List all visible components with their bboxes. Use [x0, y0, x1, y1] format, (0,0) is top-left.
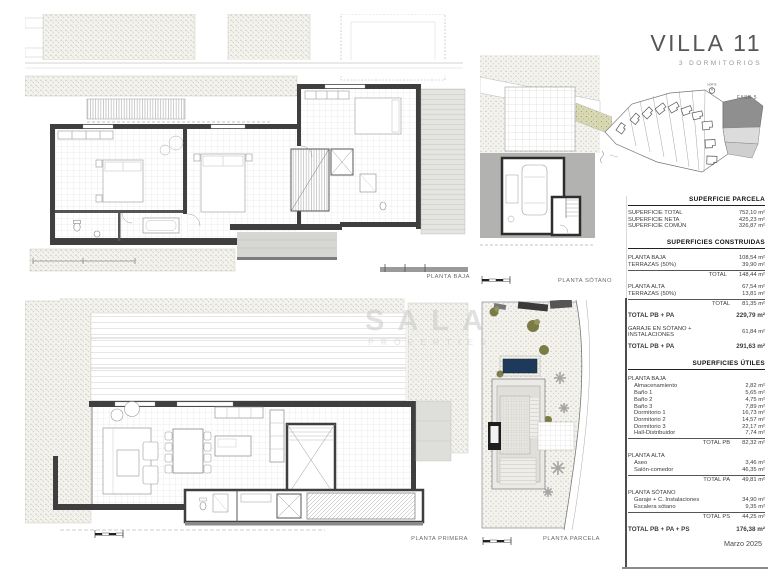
car	[522, 165, 547, 215]
villa-roof	[488, 379, 545, 489]
table-row: TOTAL PA 49,81 m²	[628, 475, 765, 484]
table-row: TOTAL PB + PA 291,63 m²	[628, 344, 765, 351]
north-arrow-icon: NORTE	[707, 82, 716, 93]
table-row: Dormitorio 2 14,57 m²	[628, 417, 765, 424]
table-row: Baño 1 5,65 m²	[628, 390, 765, 397]
label-planta-parcela: PLANTA PARCELA	[543, 536, 600, 542]
area-tables: SUPERFICIE PARCELA SUPERFICIE TOTAL 752,…	[628, 196, 765, 543]
table-header: SUPERFICIES CONSTRUIDAS	[628, 239, 765, 249]
basement-stairs	[552, 197, 580, 235]
table-row: TOTAL 148,44 m²	[628, 270, 765, 279]
scale-bar	[95, 530, 123, 538]
entry-steps	[87, 99, 270, 126]
table-row: Aseo 3,46 m²	[628, 460, 765, 467]
title-block: VILLA 11 3 DORMITORIOS	[532, 30, 762, 67]
planta-primera-plan	[25, 298, 470, 540]
label-planta-sotano: PLANTA SÓTANO	[558, 278, 612, 284]
table-header: SUPERFICIE PARCELA	[628, 196, 765, 206]
table-row: TOTAL PB + PA 229,79 m²	[628, 313, 765, 320]
stipple-top	[60, 298, 405, 313]
table-row: PLANTA ALTA 67,54 m²	[628, 284, 765, 291]
table-row: Dormitorio 1 16,73 m²	[628, 410, 765, 417]
table-row: PLANTA BAJA	[628, 376, 765, 383]
table-row: SUPERFICIE COMÚN 326,87 m²	[628, 223, 765, 230]
planta-parcela-plan	[480, 300, 612, 548]
toilet	[200, 502, 206, 510]
dining-table	[173, 429, 203, 473]
sink	[94, 231, 100, 237]
sheet-edge-line	[625, 298, 627, 568]
label-planta-baja: PLANTA BAJA	[427, 274, 470, 280]
fase-label: FASE 5	[737, 95, 757, 101]
site-location-map: NORTE FASE 5	[602, 82, 768, 178]
table-row: PLANTA ALTA	[628, 453, 765, 460]
table-row: TOTAL 81,35 m²	[628, 299, 765, 308]
table-row: PLANTA BAJA 108,54 m²	[628, 255, 765, 262]
pouf	[111, 409, 123, 421]
superficies-construidas-table: SUPERFICIES CONSTRUIDAS PLANTA BAJA 108,…	[628, 239, 765, 351]
coffee-table	[117, 450, 139, 476]
table-row: Dormitorio 3 22,17 m²	[628, 424, 765, 431]
superficie-parcela-table: SUPERFICIE PARCELA SUPERFICIE TOTAL 752,…	[628, 196, 765, 230]
table-rows: PLANTA BAJA Almacenamiento 2,82 m² Baño …	[628, 376, 765, 534]
table-header: SUPERFICIES ÚTILES	[628, 360, 765, 370]
superficies-utiles-table: SUPERFICIES ÚTILES PLANTA BAJA Almacenam…	[628, 360, 765, 534]
table-row: Hall-Distribuidor 7,74 m²	[628, 430, 765, 437]
sheet-edge-line	[626, 196, 627, 298]
annex	[185, 490, 423, 526]
table-row: Salón-comedor 46,35 m²	[628, 467, 765, 474]
table-row: TOTAL PB + PA + PS 176,38 m²	[628, 527, 765, 534]
table-row: TOTAL PS 44,25 m²	[628, 512, 765, 521]
toilet	[380, 202, 386, 210]
table-row: PLANTA SÓTANO	[628, 490, 765, 497]
patio-grid	[538, 422, 574, 450]
table-row: SUPERFICIE TOTAL 752,10 m²	[628, 210, 765, 217]
planta-baja-plan	[25, 14, 470, 276]
driveway-grid	[505, 87, 575, 151]
scale-bar	[482, 276, 510, 284]
armchair	[143, 466, 158, 484]
label-planta-primera: PLANTA PRIMERA	[411, 536, 468, 542]
table-row: TERRAZAS (50%) 39,90 m²	[628, 262, 765, 269]
map-annotation	[610, 155, 618, 157]
table-row: Almacenamiento 2,82 m²	[628, 383, 765, 390]
terrace-bottom	[237, 232, 468, 272]
table-row: TERRAZAS (50%) 13,81 m²	[628, 291, 765, 298]
storage	[506, 175, 518, 203]
table-row: Baño 3 7,89 m²	[628, 404, 765, 411]
stairwell	[287, 424, 335, 496]
pool	[503, 359, 537, 373]
sheet-edge-line	[622, 567, 768, 569]
toilet	[74, 223, 80, 231]
page-subtitle: 3 DORMITORIOS	[532, 60, 762, 67]
table-rows: SUPERFICIE TOTAL 752,10 m² SUPERFICIE NE…	[628, 210, 765, 230]
svg-text:NORTE: NORTE	[707, 82, 716, 86]
wall-bottom-left	[53, 504, 188, 510]
lower-stipple	[30, 249, 235, 271]
terrace-right	[416, 401, 451, 461]
terrace-right	[421, 89, 465, 234]
pouf	[125, 402, 140, 417]
table-rows: PLANTA BAJA 108,54 m² TERRAZAS (50%) 39,…	[628, 255, 765, 351]
boiler	[508, 216, 514, 222]
page-title: VILLA 11	[532, 30, 762, 56]
table-row: GARAJE EN SÓTANO + INSTALACIONES 61,84 m…	[628, 326, 765, 338]
armchair	[143, 442, 158, 460]
scale-bar	[483, 537, 511, 545]
planta-sotano-plan	[480, 55, 612, 292]
table-row: Escalera sótano 9,35 m²	[628, 504, 765, 511]
table-row: Baño 2 4,75 m²	[628, 397, 765, 404]
table-row: Garaje + C. Instalaciones 34,90 m²	[628, 497, 765, 504]
fase5-plots	[723, 96, 763, 158]
deck-planks-top	[91, 313, 406, 401]
date-label: Marzo 2025	[724, 539, 762, 548]
table-row: TOTAL PB 82,32 m²	[628, 438, 765, 447]
